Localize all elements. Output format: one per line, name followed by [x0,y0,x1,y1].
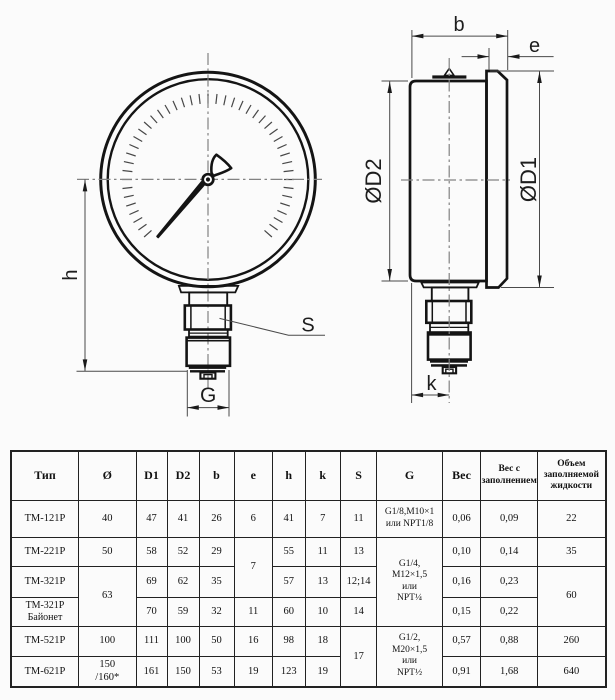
svg-text:e: e [529,35,540,57]
svg-text:h: h [60,269,82,280]
svg-text:k: k [427,373,438,395]
svg-text:b: b [453,14,464,36]
svg-text:S: S [301,315,314,337]
svg-text:ØD2: ØD2 [361,158,386,203]
svg-text:ØD1: ØD1 [516,157,541,202]
svg-text:G: G [200,384,216,407]
